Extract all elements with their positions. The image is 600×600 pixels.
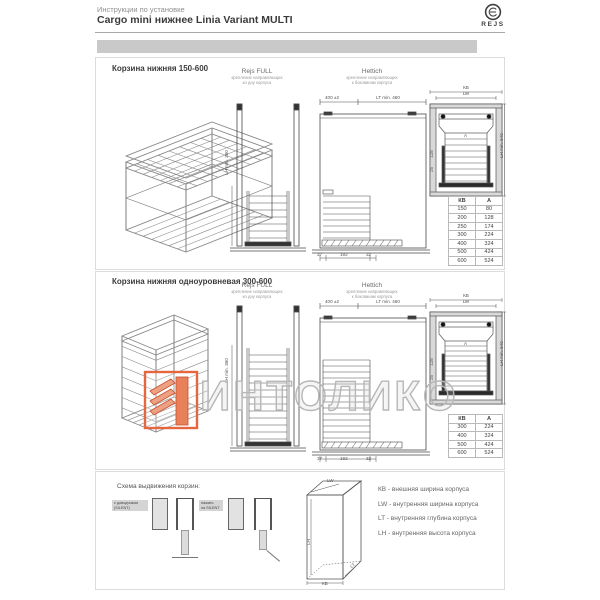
header-gray-bar [97, 40, 477, 53]
table-row: 500424 [449, 440, 503, 449]
cabinet-dim-kb: КВ [322, 581, 328, 586]
scheme-basket-tongue-1 [181, 530, 189, 555]
dim-width-s1: 400 ±2 [312, 95, 352, 100]
header-divider [95, 32, 505, 33]
hettich-label: Hettich [312, 68, 432, 75]
scheme-label-press: нажать на SILENT [199, 500, 223, 511]
watermark-logo-icon [143, 370, 199, 430]
section1-title: Корзина нижняя 150-600 [112, 64, 208, 73]
scheme-cabinet-closed-1 [152, 498, 168, 530]
legend-lw: LW - внутренняя ширина корпуса [378, 501, 503, 516]
page-title: Cargo mini нижнее Linia Variant MULTI [97, 14, 293, 26]
scheme-cabinet-extended-2 [254, 498, 272, 530]
scheme-cabinet-closed-2 [228, 498, 244, 530]
table-row: 400324 [449, 239, 503, 248]
legend-lt: LT - внутренняя глубина корпуса [378, 515, 503, 530]
table-row: 600524 [449, 449, 503, 458]
rejs-full-label: Rejs FULL [212, 68, 302, 75]
section1-col-rejs: Rejs FULL крепление направляющих ко дну … [212, 68, 302, 85]
scheme-cabinet-extended-1 [176, 498, 194, 530]
table-row: 500424 [449, 248, 503, 257]
cabinet-3d-drawing [295, 473, 373, 588]
section2-col-rejs: Rejs FULL крепление направляющих ко дну … [212, 282, 302, 299]
dim-lh-mid-s1: LH min. 380 [224, 150, 229, 175]
table-row: 300224 [449, 423, 503, 432]
cabinet-dim-lw: LW [327, 478, 334, 483]
header-eyebrow: Инструкции по установке [97, 5, 185, 14]
dim-lh-right-s1: LH min. 540 [499, 133, 504, 158]
scheme-label-soft-close: с доводчиком (SILENT) [112, 500, 148, 511]
scheme-basket-tongue-2 [259, 530, 267, 550]
table-row: 300224 [449, 231, 503, 240]
front-view-hettich-drawing-s1 [426, 88, 506, 202]
dim-width-s2: 400 ±2 [312, 299, 352, 304]
dim-a-s2: A [464, 341, 467, 346]
table-row: 400324 [449, 432, 503, 441]
dimension-table-s1: КВА 15080 200128 250174 300224 400324 50… [448, 196, 503, 266]
watermark-text: ИНТОЛИКО [200, 372, 459, 420]
legend: КВ - внешняя ширина корпуса LW - внутрен… [378, 486, 503, 544]
rejs-logo-icon [481, 3, 505, 21]
dimension-table-s2: КВА 300224 400324 500424 600524 [448, 414, 503, 458]
dim-a-s1: A [464, 133, 467, 138]
table-row: 200128 [449, 214, 503, 223]
cabinet-dim-lh: LH [306, 539, 311, 545]
legend-lh: LH - внутренняя высота корпуса [378, 530, 503, 545]
table-row: 15080 [449, 205, 503, 214]
dim-depth-s1: LT min. 460 [356, 95, 420, 100]
brand-label: REJS [477, 21, 509, 28]
legend-kb: КВ - внешняя ширина корпуса [378, 486, 503, 501]
dim-lh-right-s2: LH min. 540 [499, 341, 504, 366]
dim-depth-s2: LT min. 460 [356, 299, 420, 304]
section3-title: Схема выдвижения корзин: [117, 483, 200, 490]
table-row: 250174 [449, 222, 503, 231]
instruction-page: Инструкции по установке Cargo mini нижне… [0, 0, 600, 600]
section1-col-hettich: Hettich крепление направляющих к боковин… [312, 68, 432, 85]
scheme-floor-line-1 [172, 557, 198, 558]
table-row: 600524 [449, 257, 503, 266]
side-view-drawing-s1 [310, 92, 432, 264]
front-view-rejs-drawing-s1 [228, 96, 308, 261]
